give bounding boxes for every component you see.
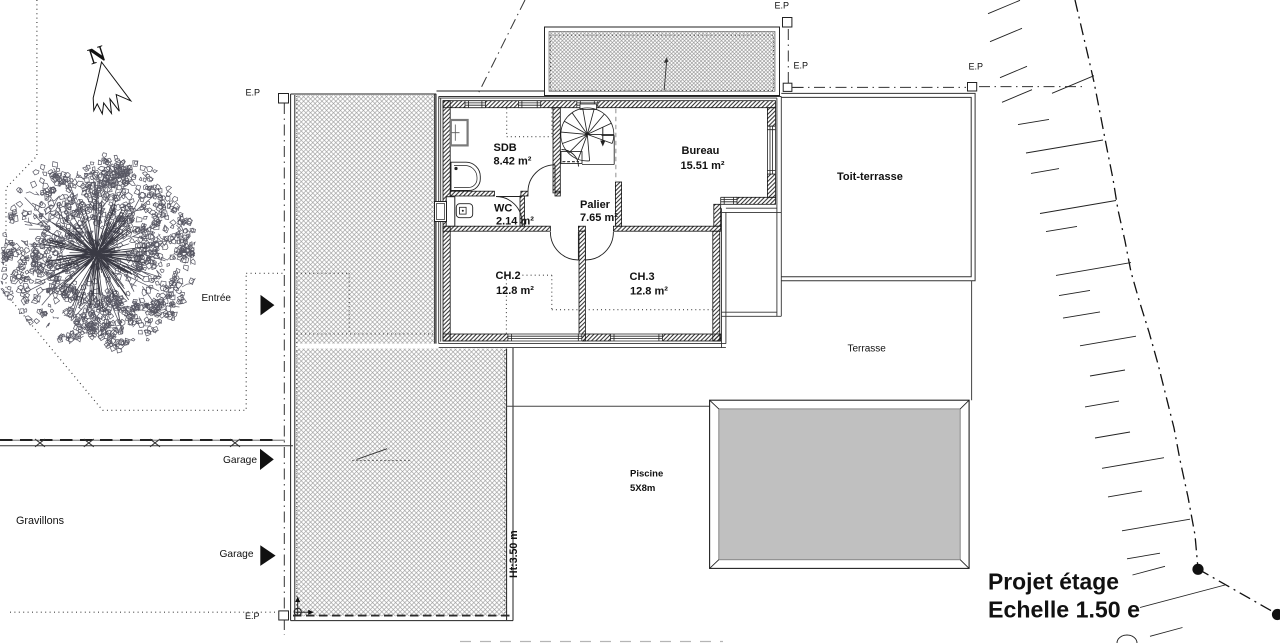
svg-text:E.P: E.P	[794, 61, 809, 71]
svg-text:Echelle 1.50 e: Echelle 1.50 e	[988, 597, 1140, 623]
svg-text:Terrasse: Terrasse	[848, 344, 887, 355]
svg-text:7.65 m²: 7.65 m²	[580, 212, 618, 224]
svg-text:Entrée: Entrée	[202, 293, 232, 304]
svg-text:5X8m: 5X8m	[630, 483, 655, 494]
svg-text:Garage: Garage	[223, 455, 257, 466]
svg-text:E.P: E.P	[245, 611, 260, 621]
svg-text:Ht:3.50 m: Ht:3.50 m	[508, 530, 520, 578]
svg-text:12.8 m²: 12.8 m²	[630, 286, 668, 298]
svg-text:E.P: E.P	[246, 88, 261, 98]
svg-text:12.8 m²: 12.8 m²	[496, 285, 534, 297]
svg-text:CH.3: CH.3	[630, 271, 655, 283]
svg-text:Garage: Garage	[220, 549, 254, 560]
svg-text:SDB: SDB	[494, 142, 517, 154]
svg-text:WC: WC	[494, 203, 512, 215]
svg-text:Toit-terrasse: Toit-terrasse	[837, 171, 903, 183]
svg-text:E.P: E.P	[775, 1, 790, 11]
svg-text:Projet étage: Projet étage	[988, 569, 1119, 595]
svg-text:Bureau: Bureau	[682, 145, 720, 157]
svg-text:2.14 m²: 2.14 m²	[496, 215, 534, 227]
svg-text:15.51 m²: 15.51 m²	[681, 160, 725, 172]
svg-text:Gravillons: Gravillons	[16, 515, 65, 527]
svg-text:Piscine: Piscine	[630, 469, 663, 480]
svg-text:8.42 m²: 8.42 m²	[494, 156, 532, 168]
svg-text:Palier: Palier	[580, 199, 611, 211]
svg-text:CH.2: CH.2	[496, 270, 521, 282]
svg-text:E.P: E.P	[969, 62, 984, 72]
